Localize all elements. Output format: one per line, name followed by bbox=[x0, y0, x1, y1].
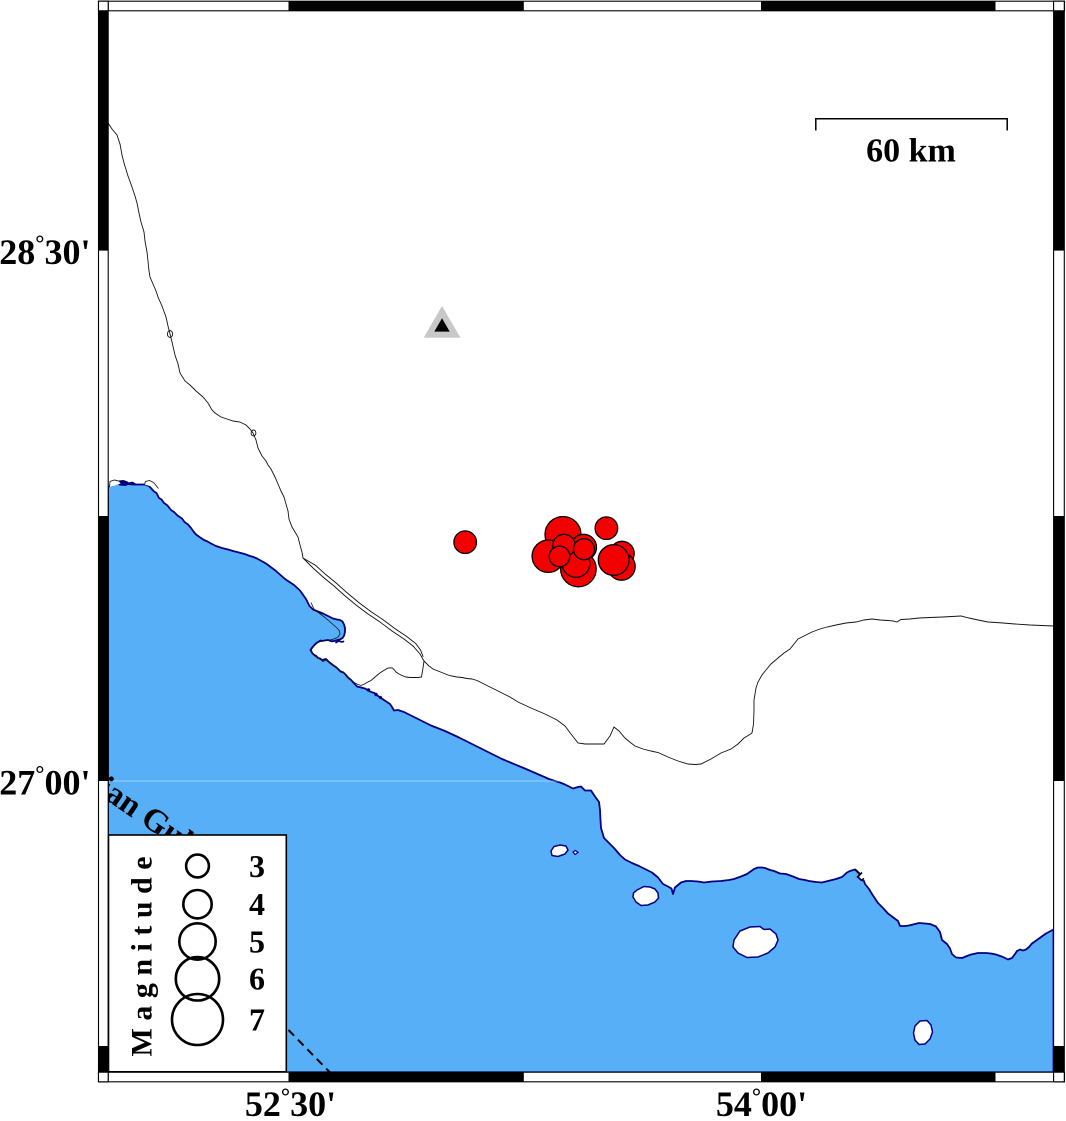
svg-text:3: 3 bbox=[249, 848, 265, 884]
svg-text:28°30': 28°30' bbox=[0, 231, 91, 272]
svg-text:4: 4 bbox=[249, 886, 265, 922]
svg-text:54°00': 54°00' bbox=[716, 1084, 807, 1121]
svg-text:7: 7 bbox=[249, 1001, 265, 1037]
svg-text:60 km: 60 km bbox=[866, 133, 956, 170]
svg-text:52°30': 52°30' bbox=[245, 1084, 336, 1121]
svg-text:6: 6 bbox=[249, 961, 265, 997]
svg-text:27°00': 27°00' bbox=[0, 762, 91, 803]
svg-text:5: 5 bbox=[249, 923, 265, 959]
svg-text:Magnitude: Magnitude bbox=[126, 849, 159, 1057]
